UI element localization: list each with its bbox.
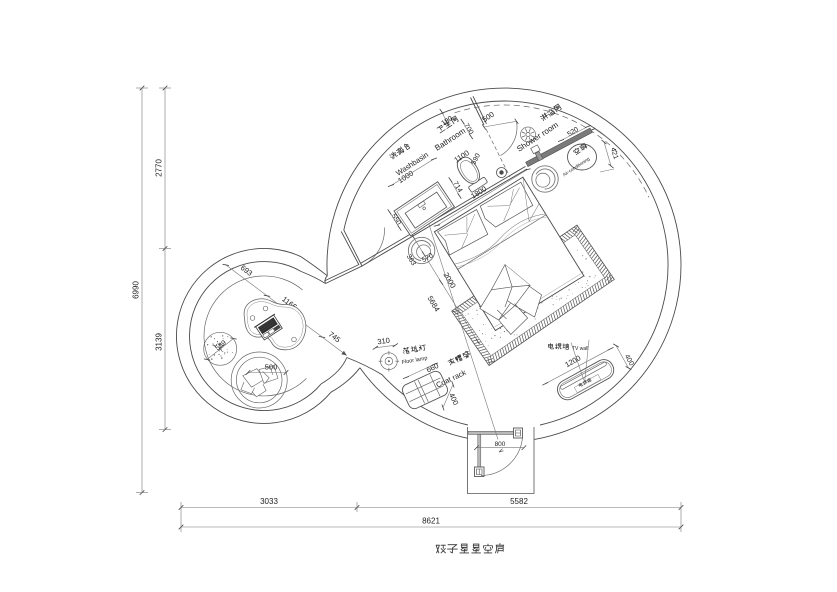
svg-text:8621: 8621: [422, 517, 440, 526]
svg-text:800: 800: [495, 441, 506, 448]
svg-text:6990: 6990: [132, 281, 141, 299]
svg-text:5582: 5582: [510, 497, 528, 506]
svg-text:2770: 2770: [155, 159, 164, 177]
svg-text:TV wall: TV wall: [572, 346, 588, 352]
svg-text:500: 500: [265, 363, 278, 372]
svg-text:3139: 3139: [155, 333, 164, 351]
svg-text:310: 310: [377, 336, 391, 347]
svg-text:3033: 3033: [260, 497, 278, 506]
